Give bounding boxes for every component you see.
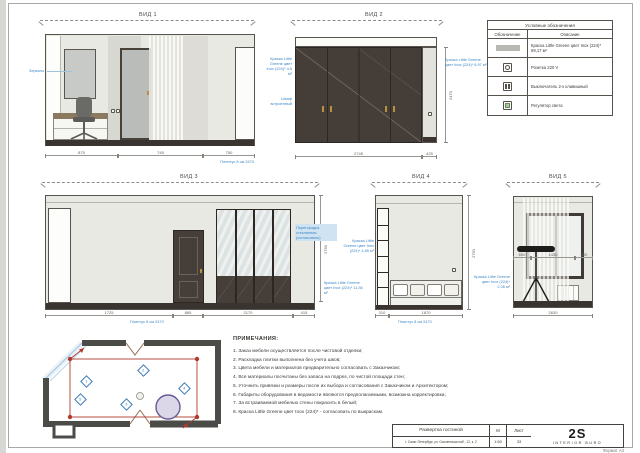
- v3-annotation-glass: Перегородка стеклянная (согласовать): [295, 224, 337, 241]
- notes-title: ПРИМЕЧАНИЯ:: [233, 336, 487, 342]
- v2-dim: 425: [422, 156, 437, 157]
- view-1-extent-line: [40, 20, 254, 21]
- v1-office-chair: [66, 97, 102, 141]
- v4-pillow: [410, 284, 425, 296]
- logo-subtitle: INTERIOR BURO: [553, 441, 602, 445]
- v4-pillow: [444, 284, 459, 296]
- note-item: 3. Цвета мебели и материалов предварител…: [233, 365, 487, 374]
- titleblock-scale: 1:50: [489, 436, 506, 447]
- v4-shelf: [378, 240, 388, 241]
- dimmer-icon: [503, 101, 512, 110]
- v3-mullion: [253, 210, 255, 304]
- v2-dim: 2745: [295, 156, 422, 157]
- v3-dim: 885: [173, 315, 203, 316]
- titleblock-row-divider: [393, 436, 531, 437]
- v1-socket-icon: [116, 109, 120, 113]
- legend-col-symbol: Обозначение: [488, 30, 528, 38]
- v3-mullion: [272, 210, 274, 304]
- legend-title: Условные обозначения: [488, 21, 612, 30]
- v3-glass-partition: [216, 209, 291, 303]
- titleblock-project: Развертка гостиной: [393, 425, 489, 436]
- v3-mullion: [235, 210, 237, 304]
- v4-dim: 1870: [389, 315, 463, 316]
- v1-wardrobe: [235, 47, 255, 140]
- v2-handle-icon: [385, 106, 387, 112]
- v4-sofa: [390, 280, 462, 308]
- v5-dim-inner: 1430: [531, 257, 575, 258]
- v2-socket-icon: [428, 112, 432, 116]
- legend-desc: Краска Little Greene цвет Inox (224)* 69…: [528, 39, 612, 57]
- view-1: ВИД 1 875 745 750 Зеркало Плинтус 8 см 2…: [38, 12, 258, 172]
- view-3-wall: [45, 195, 315, 310]
- v2-side-panel: [422, 47, 437, 143]
- v2-handle-icon: [322, 106, 324, 112]
- v3-door-panel: [179, 281, 198, 298]
- v5-dim-inner: 600: [513, 257, 531, 258]
- titleblock-sheet-label: Лист: [506, 425, 531, 436]
- note-item: 7. За встраиваемой мебелью стены покраси…: [233, 400, 487, 409]
- v1-leader-line: [47, 71, 72, 72]
- view-4-title: ВИД 4: [352, 174, 490, 180]
- view-3-extent-line: [42, 182, 318, 183]
- paint-swatch: [496, 45, 520, 51]
- view-4-wall: [375, 195, 463, 310]
- v2-cornice: [295, 37, 437, 47]
- v4-shelf: [378, 287, 388, 288]
- view-1-title: ВИД 1: [38, 12, 258, 18]
- v2-handle-icon: [330, 106, 332, 112]
- legend-table: Условные обозначения Обозначение Описани…: [487, 20, 613, 116]
- v5-annotation-paint: Краска Little Greene цвет Inox (224)* 2,…: [474, 274, 510, 289]
- v1-annotation-plinth: Плинтус 8 см 2470: [218, 159, 254, 164]
- v3-dim-height: 2750: [320, 195, 321, 302]
- switch-icon: [503, 82, 512, 91]
- titleblock-address: г. Санкт-Петербург, ул. Смоленская наб.,…: [393, 436, 489, 447]
- v5-dim-bottom: 2630: [513, 315, 593, 316]
- logo-2s: 2S: [569, 427, 587, 440]
- v2-annotation-paint-left: Краска Little Greene цвет Inox (224)* 4,…: [266, 56, 292, 76]
- view-2-extent-line: [292, 20, 442, 21]
- v1-annotation-mirror: Зеркало: [29, 68, 47, 73]
- v3-dim: 1725: [45, 315, 173, 316]
- view-5-extent-line: [507, 182, 599, 183]
- v3-floor: [46, 303, 314, 309]
- v2-panel-base: [423, 137, 436, 142]
- v4-pillow: [393, 284, 408, 296]
- v2-handle-icon: [393, 106, 395, 112]
- v4-dim-height: 2750: [468, 195, 469, 310]
- legend-desc: Регулятор света: [528, 96, 612, 115]
- v1-mirror: [64, 49, 96, 99]
- v3-dim: 415: [293, 315, 315, 316]
- view-1-wall: [45, 34, 255, 146]
- legend-row: Выключатель 2-х клавишный: [488, 77, 612, 96]
- notes-block: ПРИМЕЧАНИЯ: 1. Заказ мебели осуществляет…: [233, 336, 487, 418]
- v1-dim: 750: [203, 155, 255, 156]
- v3-door-panel: [179, 237, 198, 275]
- legend-row: Розетка 220 V: [488, 58, 612, 77]
- v2-wardrobe: [295, 47, 422, 143]
- v1-socket-icon: [111, 109, 115, 113]
- note-item: 8. Краска Little Greene цвет Inox (224)*…: [233, 409, 487, 418]
- view-2: ВИД 2 2470 2745 425 Краска Little Greene…: [290, 12, 458, 172]
- v5-dim-inner: 600: [575, 257, 593, 258]
- view-3: ВИД 3 2750 1725 885 217: [38, 174, 340, 332]
- v3-dim: 2170: [203, 315, 293, 316]
- v2-annotation-paint-right: Краска Little Greene цвет Inox (224)* 6,…: [445, 57, 487, 67]
- v4-seat-line: [391, 297, 461, 298]
- socket-icon: [503, 63, 512, 72]
- legend-header: Обозначение Описание: [488, 30, 612, 39]
- v4-cornice-line: [376, 203, 462, 204]
- v4-annotation-plinth: Плинтус 8 см 2470: [398, 319, 440, 324]
- v1-curtain: [149, 36, 183, 140]
- page-edge: [0, 0, 6, 453]
- v4-floor: [376, 305, 462, 309]
- note-item: 5. Уточнить привязки и размеры после их …: [233, 383, 487, 392]
- view-2-title: ВИД 2: [290, 12, 458, 18]
- v2-annotation-cabinet: Шкаф встроенный: [266, 96, 292, 106]
- view-4: ВИД 4 2750 310 1870 Краска Little Greene…: [352, 174, 490, 332]
- titleblock-sheet: 33: [506, 436, 531, 447]
- v4-pillow: [427, 284, 442, 296]
- v4-shelf-unit: [377, 208, 389, 308]
- legend-row: Краска Little Greene цвет Inox (224)* 69…: [488, 39, 612, 58]
- legend-col-desc: Описание: [528, 30, 612, 38]
- v4-shelf: [378, 225, 388, 226]
- v4-annotation-paint: Краска Little Greene цвет Inox (224)* 4,…: [342, 238, 374, 253]
- legend-row: Регулятор света: [488, 96, 612, 115]
- view-5-title: ВИД 5: [497, 174, 619, 180]
- note-item: 6. Габариты оборудования в ведомости явл…: [233, 392, 487, 401]
- view-4-extent-line: [372, 182, 466, 183]
- v2-wardrobe-diagonals: [296, 48, 421, 142]
- legend-desc: Розетка 220 V: [528, 58, 612, 76]
- v1-dim: 875: [45, 155, 118, 156]
- titleblock-scale-label: М: [489, 425, 506, 436]
- v3-cornice-line: [46, 202, 314, 203]
- legend-desc: Выключатель 2-х клавишный: [528, 77, 612, 95]
- view-5: ВИД 5 600 1430 600 2630 Краска Little Gr…: [497, 174, 619, 332]
- v1-wall-panel-2: [183, 36, 208, 140]
- v4-shelf: [378, 256, 388, 257]
- format-label: Формат А3: [556, 448, 624, 453]
- v3-door-handle: [200, 269, 202, 273]
- note-item: 1. Заказ мебели осуществляется после чис…: [233, 348, 487, 357]
- v4-shelf: [378, 272, 388, 273]
- v5-radiator-line: [573, 286, 574, 300]
- v5-floor: [514, 301, 592, 307]
- v4-dim: 310: [375, 315, 389, 316]
- v4-socket-icon: [452, 268, 456, 272]
- key-plan: [30, 332, 230, 450]
- v1-floor: [46, 140, 254, 146]
- v1-dim: 745: [118, 155, 203, 156]
- note-item: 2. Раскладка плитки выполнена без учета …: [233, 357, 487, 366]
- note-item: 4. Все материалы посчитаны без запаса на…: [233, 374, 487, 383]
- view-3-title: ВИД 3: [38, 174, 340, 180]
- v3-white-panel: [48, 208, 71, 303]
- logo: 2S INTERIOR BURO: [531, 425, 624, 447]
- title-block: Развертка гостиной г. Санкт-Петербург, у…: [392, 424, 624, 448]
- v3-door: [173, 230, 204, 303]
- v3-annotation-plinth: Плинтус 8 см 2470: [130, 319, 172, 324]
